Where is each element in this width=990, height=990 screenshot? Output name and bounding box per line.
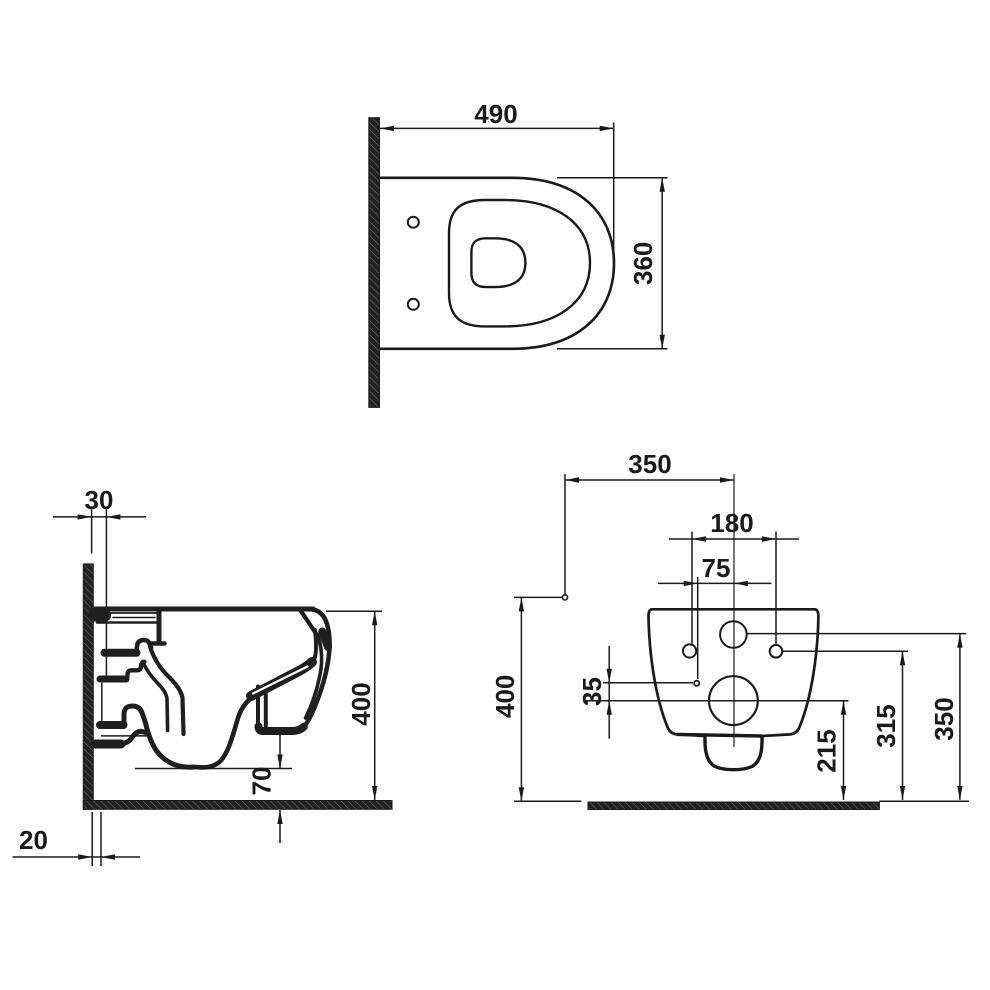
svg-text:490: 490 — [474, 99, 517, 129]
svg-text:20: 20 — [19, 825, 48, 855]
svg-text:215: 215 — [812, 729, 842, 772]
svg-text:350: 350 — [929, 697, 959, 740]
svg-text:35: 35 — [577, 677, 607, 706]
svg-text:30: 30 — [85, 485, 114, 515]
svg-text:360: 360 — [628, 242, 658, 285]
svg-text:70: 70 — [247, 767, 277, 796]
svg-text:400: 400 — [346, 682, 376, 725]
svg-text:400: 400 — [490, 675, 520, 718]
svg-text:350: 350 — [628, 449, 671, 479]
svg-text:75: 75 — [702, 553, 731, 583]
svg-text:180: 180 — [710, 508, 753, 538]
svg-text:315: 315 — [871, 704, 901, 747]
